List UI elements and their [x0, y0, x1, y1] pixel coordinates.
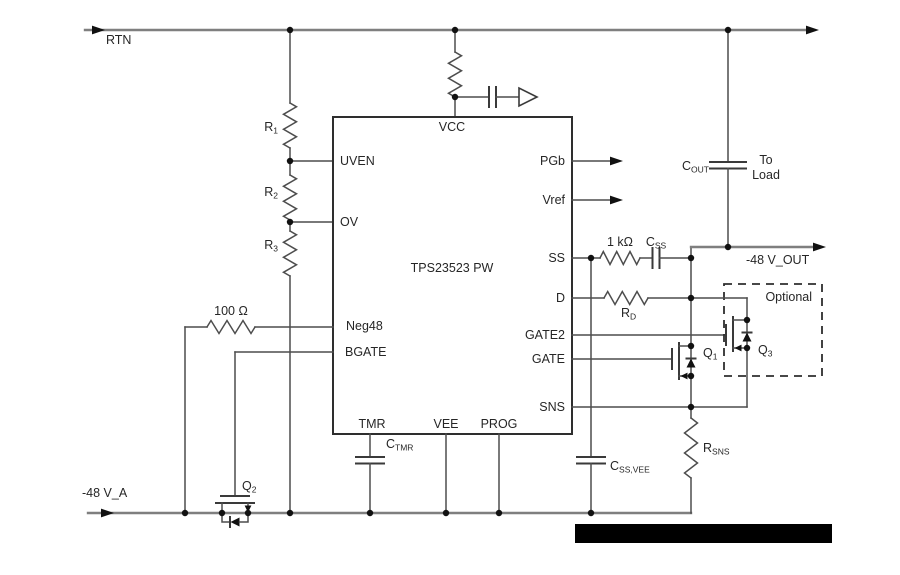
- d-branch: [572, 292, 691, 305]
- pin-neg48: Neg48: [346, 319, 383, 333]
- mosfet-q3: [691, 298, 752, 407]
- buffer-triangle-icon: [519, 88, 537, 106]
- pin-uven: UVEN: [340, 154, 375, 168]
- resistor-100ohm: [207, 321, 255, 334]
- resistor-rsns: [685, 407, 698, 513]
- to-load-label: ToLoad: [752, 153, 780, 182]
- q2-body-diode-icon: [222, 513, 248, 527]
- rtn-label: RTN: [106, 33, 131, 47]
- rtn-right-arrow-icon: [806, 26, 819, 35]
- r3-label: R3: [264, 238, 278, 254]
- q2-label: Q2: [242, 479, 257, 495]
- optional-label: Optional: [765, 290, 812, 304]
- cout-branch: [710, 30, 746, 247]
- q3-label: Q3: [758, 343, 773, 359]
- q1-source-arrow-icon: [681, 373, 688, 380]
- bgate-branch: [235, 352, 333, 496]
- schematic-figure: TPS23523 PW VCC UVEN OV Neg48 BGATE PGb …: [0, 0, 900, 575]
- pgb-output: [572, 157, 623, 166]
- neg48out-arrow-icon: [813, 243, 826, 252]
- r100-label: 100 Ω: [214, 304, 248, 318]
- neg48a-label: -48 V_A: [82, 486, 128, 500]
- css-label: CSS: [646, 235, 667, 251]
- pin-prog: PROG: [481, 417, 518, 431]
- pin-gate: GATE: [532, 352, 565, 366]
- ctmr-capacitor: [356, 457, 384, 464]
- pin-vref: Vref: [543, 193, 566, 207]
- vref-arrow-icon: [610, 196, 623, 205]
- pin-d: D: [556, 291, 565, 305]
- pin-bgate: BGATE: [345, 345, 386, 359]
- r1k-label: 1 kΩ: [607, 235, 633, 249]
- vref-output: [572, 196, 623, 205]
- cssvee-label: CSS,VEE: [610, 459, 650, 475]
- pin-vcc: VCC: [439, 120, 465, 134]
- vcc-filter: [449, 30, 538, 117]
- resistor-1k: [600, 252, 640, 265]
- css-capacitor: [653, 248, 660, 268]
- pin-vee: VEE: [433, 417, 458, 431]
- neg48a-arrow-icon: [101, 509, 114, 518]
- rsns-label: RSNS: [703, 441, 730, 457]
- vcc-resistor: [449, 52, 462, 97]
- schematic-canvas: TPS23523 PW VCC UVEN OV Neg48 BGATE PGb …: [0, 0, 900, 575]
- ic-part-label: TPS23523 PW: [411, 261, 494, 275]
- cssvee-capacitor: [577, 457, 605, 464]
- pin-ov: OV: [340, 215, 359, 229]
- pin-gate2: GATE2: [525, 328, 565, 342]
- vcc-capacitor: [489, 87, 496, 107]
- rtn-left-arrow-icon: [92, 26, 105, 35]
- q1-body-diode-icon: [687, 359, 696, 368]
- resistor-r1: [284, 30, 297, 175]
- cout-capacitor: [710, 162, 746, 169]
- q1-label: Q1: [703, 346, 718, 362]
- cssvee-branch: [577, 258, 605, 513]
- r1-label: R1: [264, 120, 278, 136]
- q3-source-arrow-icon: [735, 345, 742, 352]
- neg48-branch: [185, 321, 333, 514]
- neg48a-rail: [88, 509, 691, 518]
- redacted-caption-bar: [575, 524, 832, 543]
- neg48out-label: -48 V_OUT: [746, 253, 810, 267]
- ctmr-branch: [356, 434, 384, 513]
- ctmr-label: CTMR: [386, 437, 413, 453]
- rd-label: RD: [621, 306, 636, 322]
- resistor-rd: [604, 292, 648, 305]
- q3-body-diode-icon: [743, 333, 752, 342]
- cout-label: COUT: [682, 159, 709, 175]
- pin-pgb: PGb: [540, 154, 565, 168]
- r2-label: R2: [264, 185, 278, 201]
- pin-sns: SNS: [539, 400, 565, 414]
- resistor-r3: [284, 231, 297, 513]
- pin-ss: SS: [548, 251, 565, 265]
- pgb-arrow-icon: [610, 157, 623, 166]
- pin-tmr: TMR: [358, 417, 385, 431]
